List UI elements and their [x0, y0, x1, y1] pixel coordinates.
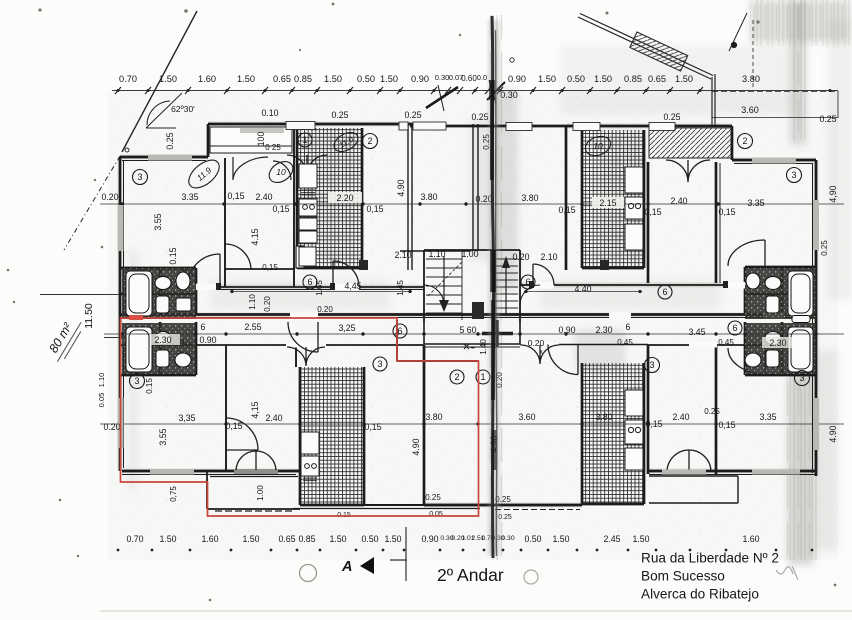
svg-text:0.05: 0.05 — [429, 511, 443, 518]
svg-text:3.35: 3.35 — [759, 412, 776, 422]
svg-text:0.0: 0.0 — [477, 73, 487, 82]
svg-text:6: 6 — [626, 322, 631, 332]
svg-text:4,90: 4,90 — [828, 185, 838, 202]
svg-text:4.90: 4.90 — [396, 179, 406, 196]
svg-text:0,15: 0,15 — [227, 191, 244, 201]
svg-text:1.50: 1.50 — [552, 534, 569, 544]
svg-text:1.50: 1.50 — [159, 534, 176, 544]
svg-text:0.25: 0.25 — [425, 493, 441, 502]
svg-text:0.65: 0.65 — [278, 534, 295, 544]
svg-text:6: 6 — [732, 323, 737, 333]
svg-text:0.25: 0.25 — [820, 240, 829, 256]
svg-text:3.60: 3.60 — [741, 105, 759, 115]
svg-text:1.10: 1.10 — [428, 249, 445, 259]
svg-text:0.65: 0.65 — [648, 74, 666, 84]
svg-text:1.50: 1.50 — [380, 74, 398, 84]
svg-text:2: 2 — [742, 136, 747, 146]
svg-text:1.50: 1.50 — [159, 74, 177, 84]
svg-text:1.50: 1.50 — [632, 534, 649, 544]
svg-text:0.20: 0.20 — [317, 305, 333, 314]
svg-text:3: 3 — [134, 376, 139, 386]
svg-text:0,45: 0,45 — [718, 338, 734, 347]
svg-text:Alverca do Ribatejo: Alverca do Ribatejo — [641, 587, 759, 602]
svg-text:4.90: 4.90 — [828, 425, 838, 442]
svg-text:0.90: 0.90 — [421, 534, 438, 544]
svg-text:1: 1 — [480, 372, 485, 382]
svg-text:4,45: 4,45 — [344, 281, 361, 291]
svg-text:0,15: 0,15 — [645, 419, 662, 429]
svg-text:0,15: 0,15 — [225, 421, 242, 431]
svg-text:0.05: 0.05 — [97, 393, 106, 408]
svg-text:2.55: 2.55 — [244, 322, 261, 332]
svg-text:1: 1 — [302, 135, 307, 145]
svg-text:2.10: 2.10 — [540, 252, 557, 262]
svg-text:0.10: 0.10 — [261, 108, 278, 118]
svg-text:4,15: 4,15 — [250, 401, 260, 418]
svg-text:3.55: 3.55 — [158, 428, 168, 445]
svg-text:2: 2 — [454, 372, 459, 382]
svg-text:A: A — [341, 559, 352, 575]
svg-text:1.65: 1.65 — [315, 280, 324, 296]
svg-text:0.90: 0.90 — [199, 335, 216, 345]
svg-text:3.80: 3.80 — [521, 193, 538, 203]
svg-text:0,15: 0,15 — [262, 263, 278, 272]
svg-text:2: 2 — [367, 136, 372, 146]
svg-text:1.00: 1.00 — [256, 485, 265, 501]
svg-text:6: 6 — [397, 326, 402, 336]
svg-text:Bom Sucesso: Bom Sucesso — [641, 569, 725, 584]
svg-text:0.50: 0.50 — [524, 534, 541, 544]
svg-text:10: 10 — [276, 167, 286, 177]
svg-text:3: 3 — [377, 359, 382, 369]
svg-text:x: x — [539, 349, 543, 356]
svg-text:2º Andar: 2º Andar — [437, 565, 504, 585]
svg-text:0.85: 0.85 — [294, 74, 312, 84]
svg-text:0 25: 0 25 — [265, 143, 281, 152]
svg-text:2.10: 2.10 — [394, 250, 411, 260]
svg-text:0,15: 0,15 — [558, 205, 575, 215]
svg-text:2.45: 2.45 — [603, 534, 620, 544]
svg-text:2.40: 2.40 — [672, 412, 689, 422]
svg-text:2.15: 2.15 — [599, 198, 616, 208]
svg-text:3.35: 3.35 — [181, 192, 198, 202]
svg-text:1.50: 1.50 — [242, 534, 259, 544]
svg-text:2.20: 2.20 — [336, 193, 353, 203]
svg-text:3: 3 — [791, 170, 796, 180]
svg-text:1.50: 1.50 — [329, 534, 346, 544]
svg-text:0.15: 0.15 — [145, 378, 154, 394]
svg-text:1.50: 1.50 — [675, 74, 693, 84]
svg-text:0.90: 0.90 — [508, 74, 526, 84]
svg-text:1.60: 1.60 — [198, 74, 216, 84]
svg-text:3: 3 — [137, 172, 142, 182]
svg-text:4.40: 4.40 — [574, 284, 591, 294]
svg-text:6: 6 — [525, 277, 530, 287]
svg-text:0.25: 0.25 — [331, 110, 348, 120]
svg-text:1.60: 1.60 — [742, 534, 759, 544]
svg-text:0.50: 0.50 — [567, 74, 585, 84]
svg-text:0.65: 0.65 — [273, 74, 291, 84]
svg-text:3.80: 3.80 — [595, 412, 612, 422]
svg-text:0.85: 0.85 — [624, 74, 642, 84]
svg-text:2.30: 2.30 — [769, 338, 786, 348]
svg-text:3: 3 — [799, 373, 804, 383]
svg-text:1.50: 1.50 — [538, 74, 556, 84]
svg-text:3.80: 3.80 — [420, 192, 437, 202]
svg-text:0.25: 0.25 — [704, 407, 720, 416]
svg-text:6: 6 — [307, 277, 312, 287]
svg-text:0,15: 0,15 — [644, 207, 661, 217]
svg-text:0,15: 0,15 — [366, 204, 383, 214]
svg-text:3.45: 3.45 — [688, 327, 705, 337]
svg-text:5 60: 5 60 — [459, 325, 476, 335]
svg-text:1.10: 1.10 — [97, 373, 106, 388]
svg-text:0,75: 0,75 — [169, 486, 178, 502]
svg-text:3.35: 3.35 — [747, 198, 764, 208]
svg-text:0.20: 0.20 — [103, 422, 120, 432]
svg-text:1.45: 1.45 — [396, 280, 405, 296]
svg-text:0.20: 0.20 — [512, 252, 529, 262]
svg-text:0,45: 0,45 — [617, 338, 633, 347]
svg-text:2.30: 2.30 — [595, 325, 612, 335]
svg-text:1.60: 1.60 — [201, 534, 218, 544]
svg-text:0.25: 0.25 — [819, 114, 836, 124]
svg-text:0.90: 0.90 — [411, 74, 429, 84]
svg-text:2.30: 2.30 — [154, 335, 171, 345]
svg-text:1.50: 1.50 — [384, 534, 401, 544]
svg-text:0.25: 0.25 — [498, 514, 512, 521]
svg-text:0.30: 0.30 — [501, 535, 514, 542]
svg-text:1.40: 1.40 — [479, 339, 488, 355]
svg-text:0,15: 0,15 — [364, 422, 381, 432]
svg-text:11.50: 11.50 — [83, 303, 95, 329]
svg-text:3: 3 — [649, 360, 654, 370]
svg-text:0.60: 0.60 — [461, 74, 477, 83]
svg-text:1.00: 1.00 — [461, 249, 478, 259]
svg-text:0.90: 0.90 — [558, 325, 575, 335]
svg-text:3,35: 3,35 — [178, 413, 195, 423]
svg-text:3,25: 3,25 — [338, 323, 355, 333]
svg-text:0.25: 0.25 — [471, 112, 488, 122]
svg-text:0.30: 0.30 — [500, 90, 518, 100]
svg-text:0.20: 0.20 — [263, 296, 272, 312]
svg-text:2.40: 2.40 — [265, 413, 282, 423]
svg-text:0.25: 0.25 — [404, 110, 421, 120]
svg-text:3.80: 3.80 — [742, 74, 760, 84]
svg-text:0.20: 0.20 — [101, 192, 118, 202]
svg-text:4.15: 4.15 — [250, 228, 260, 245]
svg-text:0.25: 0.25 — [663, 112, 680, 122]
svg-text:4.90: 4.90 — [411, 438, 421, 455]
svg-text:0.85: 0.85 — [298, 534, 315, 544]
svg-text:0,15: 0,15 — [718, 207, 735, 217]
svg-text:2.40: 2.40 — [670, 196, 687, 206]
svg-text:3.60: 3.60 — [518, 412, 535, 422]
svg-text:0,15: 0,15 — [272, 204, 289, 214]
svg-text:6: 6 — [662, 287, 667, 297]
svg-text:0.50: 0.50 — [357, 74, 375, 84]
svg-text:0.70: 0.70 — [126, 534, 143, 544]
svg-text:0,15: 0,15 — [718, 420, 735, 430]
svg-text:0.25: 0.25 — [165, 132, 175, 149]
svg-text:1.50: 1.50 — [594, 74, 612, 84]
svg-text:3.80: 3.80 — [425, 412, 442, 422]
svg-text:0.70: 0.70 — [119, 74, 137, 84]
svg-text:1.50: 1.50 — [324, 74, 342, 84]
svg-text:62º30': 62º30' — [171, 104, 195, 114]
svg-text:0.30: 0.30 — [435, 73, 450, 82]
svg-text:6: 6 — [201, 322, 206, 332]
svg-text:0.15: 0.15 — [168, 247, 178, 264]
svg-text:0.20: 0.20 — [528, 338, 545, 348]
svg-text:10: 10 — [593, 141, 603, 151]
svg-text:3.55: 3.55 — [153, 213, 163, 230]
svg-text:Rua da Liberdade Nº 2: Rua da Liberdade Nº 2 — [641, 551, 779, 566]
svg-text:1.50: 1.50 — [237, 74, 255, 84]
svg-text:1.10: 1.10 — [248, 294, 257, 310]
svg-text:0.50: 0.50 — [361, 534, 378, 544]
svg-text:2.40: 2.40 — [255, 192, 272, 202]
